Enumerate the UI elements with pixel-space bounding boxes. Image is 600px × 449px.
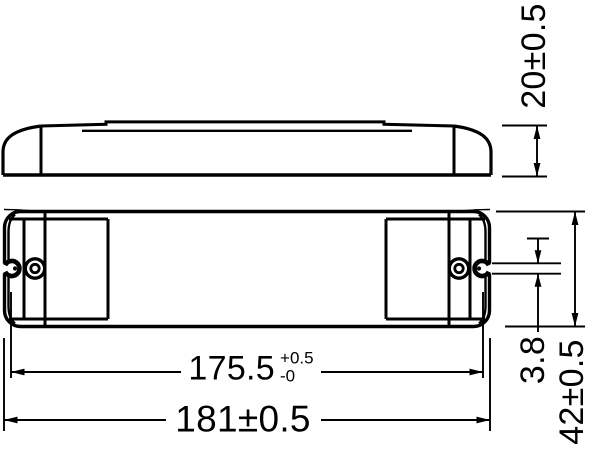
top-view: [0, 210, 494, 327]
tolerance-stack: +0.5 -0: [280, 350, 314, 387]
dimension-height-lines: [502, 126, 547, 177]
wire-entry-hole-left: [5, 261, 19, 276]
technical-drawing: 20±0.5 175.5 +0.5 -0 181±0.5 3.8 42±0.5: [0, 0, 600, 449]
wire-entry-center-mark-right: [477, 266, 481, 270]
dimension-hole-diameter-label: 3.8: [516, 336, 550, 384]
dimension-terminal-pitch-label: 175.5 +0.5 -0: [188, 351, 313, 388]
side-view-left-cap: [3, 126, 41, 175]
dimension-terminal-pitch-value: 175.5: [188, 352, 275, 386]
side-view: [3, 122, 491, 175]
tolerance-minus: -0: [280, 368, 314, 386]
dimension-length-label: 181±0.5: [175, 401, 311, 438]
side-view-right-cap: [454, 126, 491, 175]
dimension-width-label: 42±0.5: [555, 339, 589, 445]
dimension-height-label: 20±0.5: [517, 3, 551, 109]
wire-entry-hole-right: [475, 261, 489, 276]
arrowhead: [535, 250, 542, 286]
wire-entry-center-mark-left: [13, 266, 17, 270]
side-view-top-profile: [41, 122, 454, 126]
tolerance-plus: +0.5: [280, 350, 314, 368]
top-view-outline: [5, 212, 490, 327]
dimension-width-lines: [496, 212, 585, 327]
dimension-hole-lines: [492, 239, 561, 333]
terminal-screw-left: [25, 259, 44, 278]
terminal-screw-right: [449, 259, 468, 278]
